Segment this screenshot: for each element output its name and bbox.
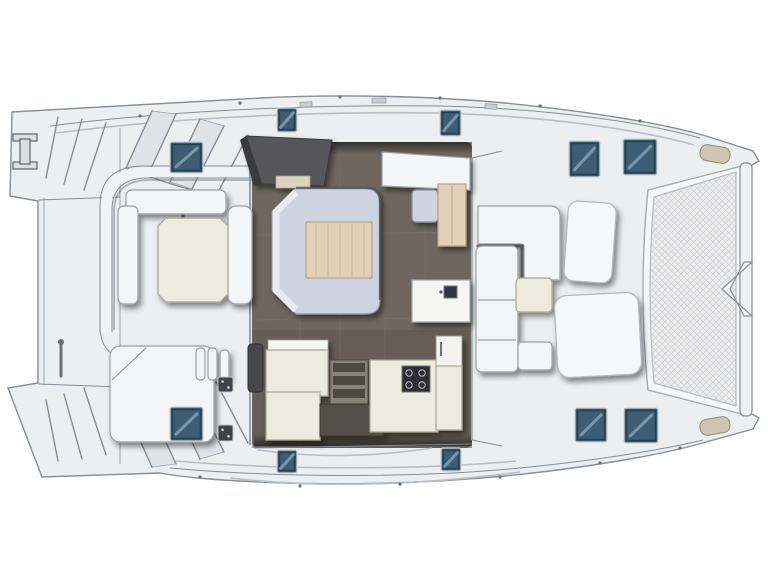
sunpad-port <box>563 200 616 283</box>
forward-bench-small <box>518 342 552 370</box>
coachroof-port-fwd-hatch <box>440 110 461 136</box>
aft-bench-right <box>228 206 252 304</box>
foredeck-port-hatch-outer <box>623 139 657 175</box>
catamaran-deck-plan <box>0 0 768 576</box>
coachroof-port-hatch <box>277 108 297 132</box>
forward-cockpit-table <box>516 278 552 312</box>
galley-cabinet-aft <box>266 350 328 396</box>
galley-cabinet-lower <box>266 392 320 440</box>
sliding-door-hardware <box>248 344 263 392</box>
foredeck-port-hatch-inner <box>569 141 600 177</box>
forward-bench-side <box>476 246 518 372</box>
boat-plan-stage <box>0 0 768 576</box>
deck-fitting <box>218 377 233 392</box>
sunpad-starboard <box>554 292 642 378</box>
galley-door <box>436 336 462 430</box>
entry-shelf <box>276 176 310 188</box>
deck-fitting <box>218 425 233 441</box>
aft-bench-left <box>118 206 138 304</box>
forward-cockpit <box>476 206 560 372</box>
trampoline <box>643 144 752 437</box>
foredeck-stbd-hatch-outer <box>624 408 658 443</box>
coachroof-stbd-hatch <box>277 450 297 473</box>
dinette <box>272 188 380 314</box>
foredeck-stbd-hatch-inner <box>575 408 607 442</box>
coachroof-stbd-fwd-hatch <box>441 448 461 471</box>
stove <box>402 366 430 392</box>
cockpit-table <box>158 218 228 302</box>
forward-crossbeam <box>740 163 752 416</box>
aft-port-coachroof-hatch <box>170 142 203 173</box>
nav-seat <box>412 190 438 222</box>
aft-bench-top <box>126 190 226 214</box>
sink-counter <box>412 280 470 322</box>
saloon-entry-structure <box>240 136 332 188</box>
cockpit-sole-hatch <box>170 407 203 441</box>
dinette-table <box>306 222 372 278</box>
